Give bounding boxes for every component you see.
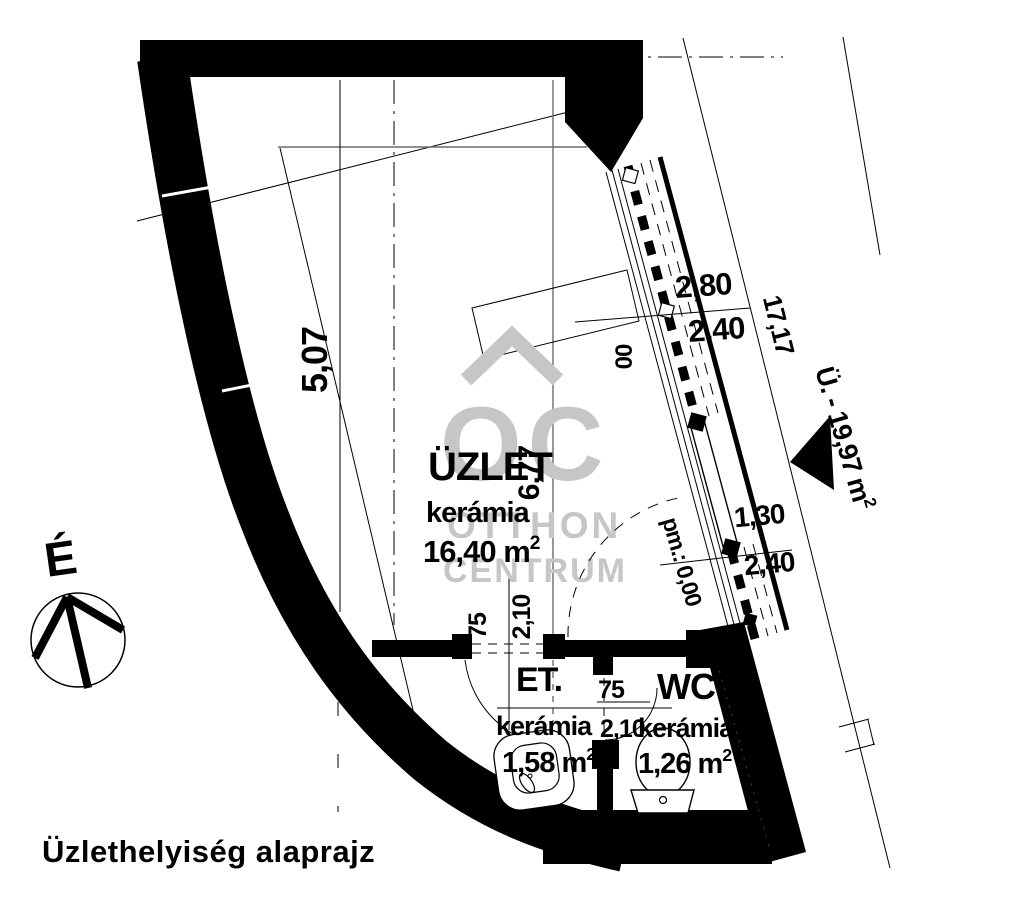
wc-room-area: 1,26 m2 (638, 745, 732, 780)
frame-marker (622, 168, 638, 184)
dim-door-height: 2,40 (743, 546, 796, 581)
dim-door-width: 1,30 (733, 498, 786, 533)
wc-partition-stub (593, 657, 613, 675)
drawing-title: Üzlethelyiség alaprajz (42, 834, 375, 869)
entry-room-name: ET. (516, 661, 562, 699)
boundary-tick (868, 720, 874, 745)
north-label: É (41, 530, 80, 588)
door-post-right (543, 634, 565, 659)
toilet-flush-dot (660, 797, 667, 804)
dim-entry-door-width: 75 (464, 612, 492, 639)
shop-room-floor: kerámia (426, 497, 531, 529)
boundary-tick (845, 744, 875, 752)
entrance-door-leaf (690, 420, 738, 550)
shop-room-name: ÜZLET (428, 444, 552, 489)
dim-sill-mark: 00 (611, 344, 638, 369)
boundary-tick (839, 719, 869, 727)
dim-left-width: 5,07 (294, 327, 335, 393)
bottom-wall (543, 810, 772, 864)
dim-window-width: 2,80 (674, 266, 733, 305)
wc-partition-lower (597, 769, 613, 814)
entry-room-floor: kerámia (496, 711, 593, 741)
north-arrow-stroke (35, 597, 67, 658)
dim-entry-door-height: 2,10 (508, 595, 536, 640)
wc-room-floor: kerámia (638, 713, 735, 743)
entrance-direction-arrow (790, 416, 834, 490)
right-edge-line (843, 37, 880, 255)
corner-pillar (565, 40, 643, 172)
floorplan-drawing: OC OTTHON CENTRUM (0, 0, 1015, 900)
partition-shop-right (545, 640, 700, 657)
dim-window-height: 2,40 (687, 310, 746, 349)
floorplan-canvas: OC OTTHON CENTRUM (0, 0, 1015, 900)
wc-door-post (592, 740, 619, 769)
dim-floor-level: pm.: 0,00 (657, 514, 707, 609)
dim-boundary-length: 17,17 (757, 292, 801, 358)
entry-room-area: 1,58 m2 (502, 744, 596, 779)
wc-room-name: WC (657, 666, 716, 707)
dim-wc-door-width: 75 (598, 676, 625, 704)
north-indicator: É (31, 530, 125, 688)
shop-room-area: 16,40 m2 (423, 533, 540, 569)
entrance-corner-post (686, 630, 730, 668)
frame-marker (658, 303, 674, 319)
